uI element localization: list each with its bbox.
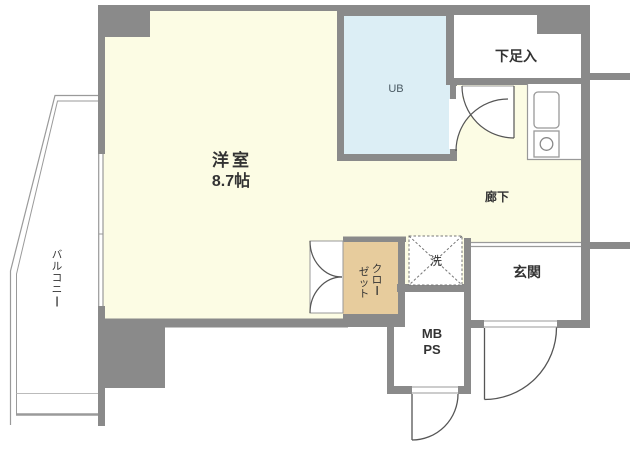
svg-text:ル: ル (52, 261, 63, 273)
svg-text:玄関: 玄関 (513, 264, 541, 280)
svg-text:UB: UB (388, 83, 403, 95)
svg-text:ロ: ロ (372, 274, 383, 286)
svg-text:コ: コ (52, 272, 63, 284)
svg-text:洋室: 洋室 (212, 150, 252, 170)
svg-text:PS: PS (423, 342, 441, 357)
svg-text:8.7帖: 8.7帖 (212, 171, 250, 190)
svg-text:ト: ト (359, 288, 370, 300)
svg-text:MB: MB (422, 326, 442, 341)
svg-text:バ: バ (52, 249, 63, 261)
svg-text:ニ: ニ (52, 284, 63, 296)
svg-text:下足入: 下足入 (495, 48, 537, 64)
svg-text:洗: 洗 (430, 254, 442, 268)
svg-text:廊下: 廊下 (485, 189, 509, 204)
